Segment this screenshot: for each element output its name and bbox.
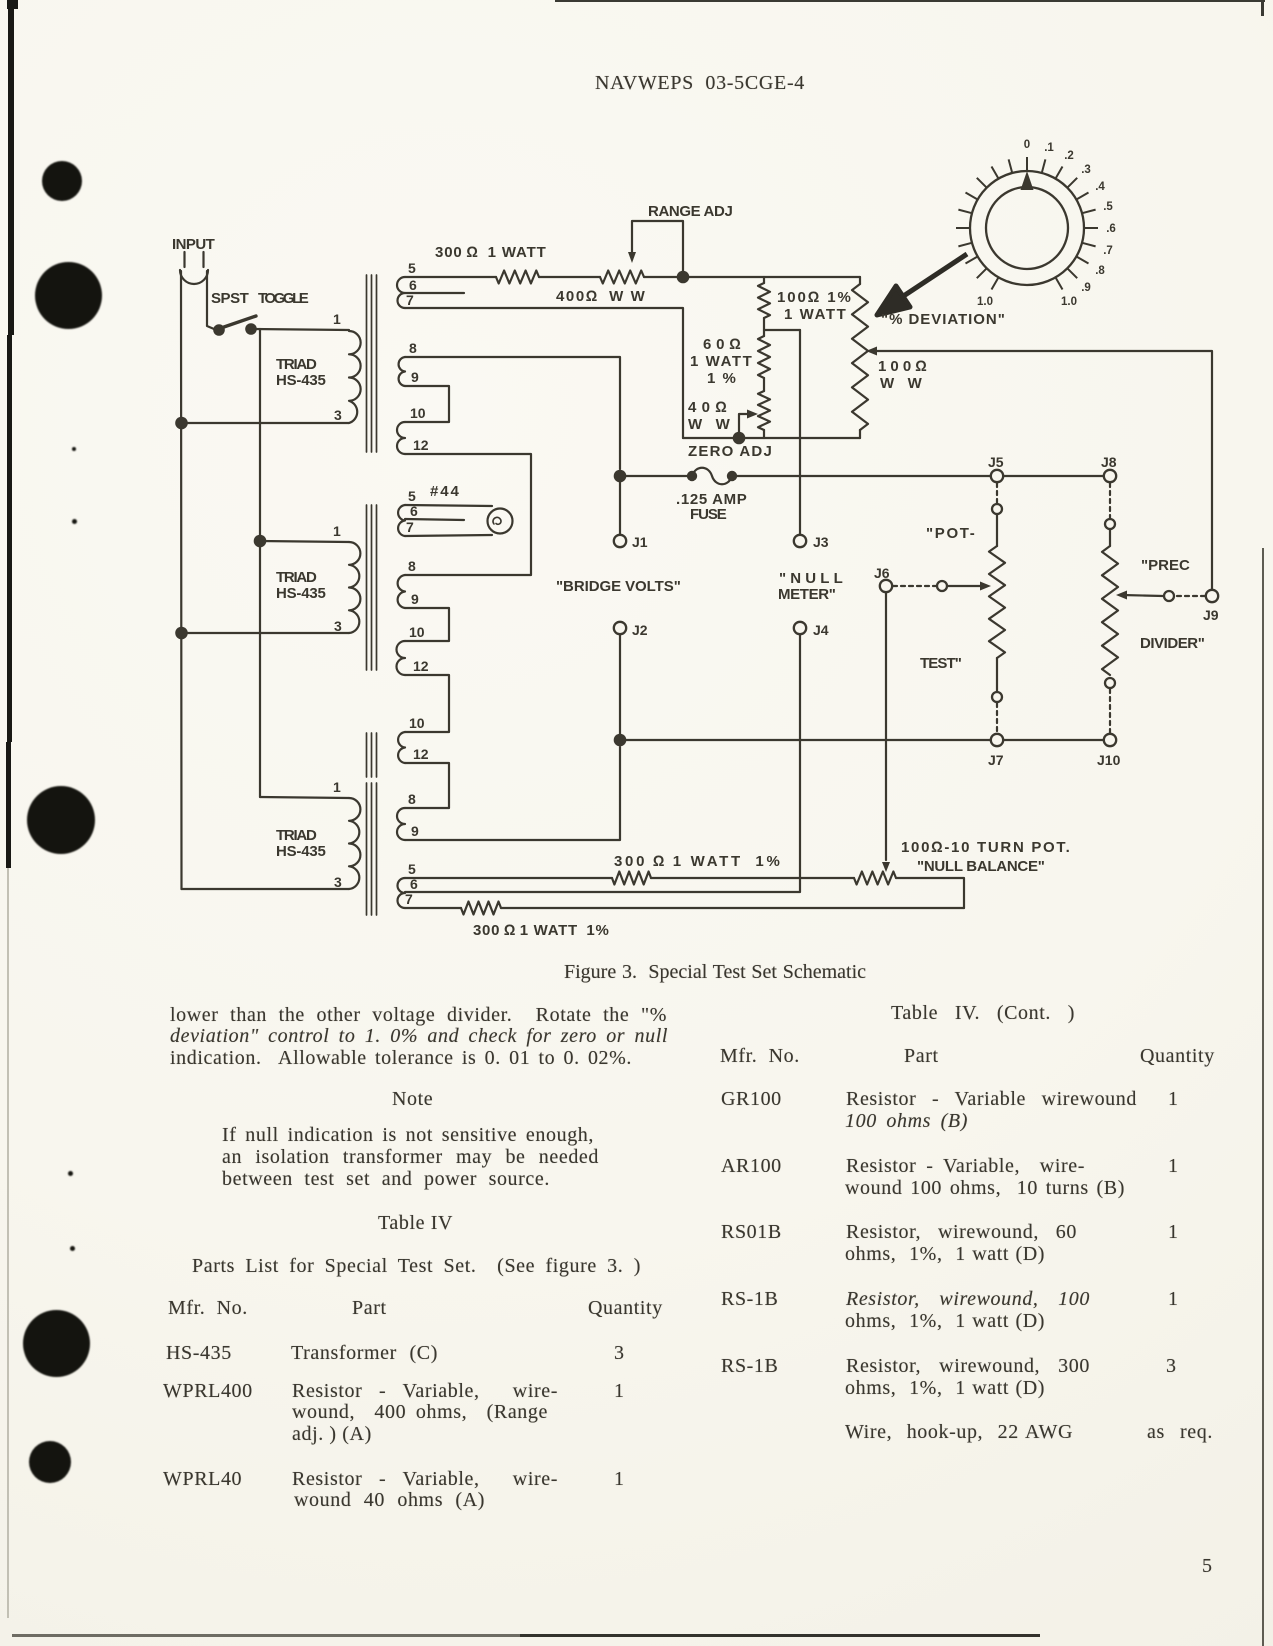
svg-text:100Ω-10 TURN POT.: 100Ω-10 TURN POT. bbox=[901, 839, 1070, 856]
svg-text:TOGGLE: TOGGLE bbox=[258, 290, 309, 307]
svg-text:300 Ω 1 WATT 1%: 300 Ω 1 WATT 1% bbox=[473, 922, 609, 939]
svg-text:J1: J1 bbox=[632, 534, 648, 550]
svg-text:7: 7 bbox=[406, 519, 414, 535]
svg-text:"POT-: "POT- bbox=[926, 525, 975, 542]
svg-text:1.0: 1.0 bbox=[977, 296, 993, 308]
svg-text:.7: .7 bbox=[1103, 245, 1113, 257]
svg-text:10: 10 bbox=[409, 715, 425, 731]
svg-text:1.0: 1.0 bbox=[1061, 296, 1077, 308]
svg-text:"NULL: "NULL bbox=[779, 570, 843, 587]
svg-text:8: 8 bbox=[408, 558, 416, 574]
svg-text:"% DEVIATION": "% DEVIATION" bbox=[881, 311, 1005, 328]
svg-text:HS-435: HS-435 bbox=[276, 843, 326, 860]
svg-text:.8: .8 bbox=[1095, 265, 1105, 277]
svg-text:0: 0 bbox=[1024, 139, 1030, 151]
svg-text:W W: W W bbox=[688, 416, 731, 433]
svg-text:1%: 1% bbox=[707, 370, 736, 387]
svg-text:6: 6 bbox=[410, 876, 418, 892]
svg-text:SPST: SPST bbox=[211, 290, 249, 307]
svg-text:8: 8 bbox=[408, 791, 416, 807]
svg-text:.4: .4 bbox=[1095, 181, 1105, 193]
svg-text:40Ω: 40Ω bbox=[688, 399, 727, 416]
svg-text:6: 6 bbox=[409, 277, 417, 293]
svg-text:3: 3 bbox=[334, 874, 342, 890]
svg-text:J5: J5 bbox=[988, 454, 1004, 470]
svg-text:J10: J10 bbox=[1097, 752, 1121, 768]
svg-text:HS-435: HS-435 bbox=[276, 585, 326, 602]
svg-text:J7: J7 bbox=[988, 752, 1004, 768]
svg-text:J2: J2 bbox=[632, 622, 648, 638]
svg-text:DIVIDER": DIVIDER" bbox=[1140, 635, 1205, 652]
svg-text:TRIAD: TRIAD bbox=[276, 569, 317, 586]
svg-text:12: 12 bbox=[413, 746, 429, 762]
svg-text:10: 10 bbox=[410, 405, 426, 421]
svg-text:.6: .6 bbox=[1106, 223, 1116, 235]
svg-text:TEST": TEST" bbox=[920, 655, 962, 672]
svg-text:8: 8 bbox=[409, 340, 417, 356]
svg-text:100Ω 1%: 100Ω 1% bbox=[777, 289, 851, 306]
svg-text:TRIAD: TRIAD bbox=[276, 827, 317, 844]
svg-text:ZERO ADJ: ZERO ADJ bbox=[688, 443, 772, 460]
svg-text:.1: .1 bbox=[1044, 142, 1054, 154]
svg-text:9: 9 bbox=[411, 591, 419, 607]
svg-text:300 Ω 1 WATT: 300 Ω 1 WATT bbox=[435, 244, 546, 261]
svg-text:METER": METER" bbox=[778, 586, 836, 603]
svg-text:12: 12 bbox=[413, 658, 429, 674]
svg-text:7: 7 bbox=[406, 292, 414, 308]
svg-text:J8: J8 bbox=[1101, 454, 1117, 470]
svg-text:"NULL BALANCE": "NULL BALANCE" bbox=[917, 858, 1045, 875]
svg-text:.9: .9 bbox=[1081, 282, 1091, 294]
svg-text:INPUT: INPUT bbox=[172, 236, 215, 253]
svg-text:5: 5 bbox=[408, 488, 416, 504]
svg-text:1: 1 bbox=[333, 523, 341, 539]
svg-text:60Ω: 60Ω bbox=[703, 336, 741, 353]
svg-text:HS-435: HS-435 bbox=[276, 372, 326, 389]
svg-text:400Ω W W: 400Ω W W bbox=[556, 288, 646, 305]
svg-text:.3: .3 bbox=[1081, 164, 1091, 176]
svg-text:9: 9 bbox=[411, 369, 419, 385]
svg-text:100Ω: 100Ω bbox=[878, 358, 927, 375]
svg-text:1 WATT: 1 WATT bbox=[690, 353, 752, 370]
svg-text:.5: .5 bbox=[1103, 201, 1113, 213]
svg-text:J9: J9 bbox=[1203, 607, 1219, 623]
svg-text:3: 3 bbox=[334, 618, 342, 634]
svg-text:W W: W W bbox=[880, 375, 923, 392]
svg-text:.2: .2 bbox=[1064, 150, 1074, 162]
svg-text:J4: J4 bbox=[813, 622, 829, 638]
svg-text:"PREC: "PREC bbox=[1141, 557, 1190, 574]
svg-text:7: 7 bbox=[405, 891, 413, 907]
svg-text:3: 3 bbox=[334, 407, 342, 423]
svg-text:9: 9 bbox=[411, 823, 419, 839]
svg-text:12: 12 bbox=[413, 437, 429, 453]
svg-text:5: 5 bbox=[408, 861, 416, 877]
svg-text:RANGE ADJ: RANGE ADJ bbox=[648, 203, 733, 220]
svg-text:1: 1 bbox=[333, 311, 341, 327]
svg-text:10: 10 bbox=[409, 624, 425, 640]
svg-text:1 WATT: 1 WATT bbox=[784, 306, 846, 323]
svg-text:5: 5 bbox=[408, 260, 416, 276]
svg-text:1: 1 bbox=[333, 779, 341, 795]
svg-text:"BRIDGE VOLTS": "BRIDGE VOLTS" bbox=[556, 578, 681, 595]
svg-text:J3: J3 bbox=[813, 534, 829, 550]
svg-text:300 Ω 1 WATT 1%: 300 Ω 1 WATT 1% bbox=[614, 853, 780, 870]
svg-text:FUSE: FUSE bbox=[690, 506, 727, 523]
svg-text:J6: J6 bbox=[874, 565, 890, 581]
svg-text:TRIAD: TRIAD bbox=[276, 356, 317, 373]
svg-text:#44: #44 bbox=[430, 483, 459, 500]
svg-text:6: 6 bbox=[410, 503, 418, 519]
